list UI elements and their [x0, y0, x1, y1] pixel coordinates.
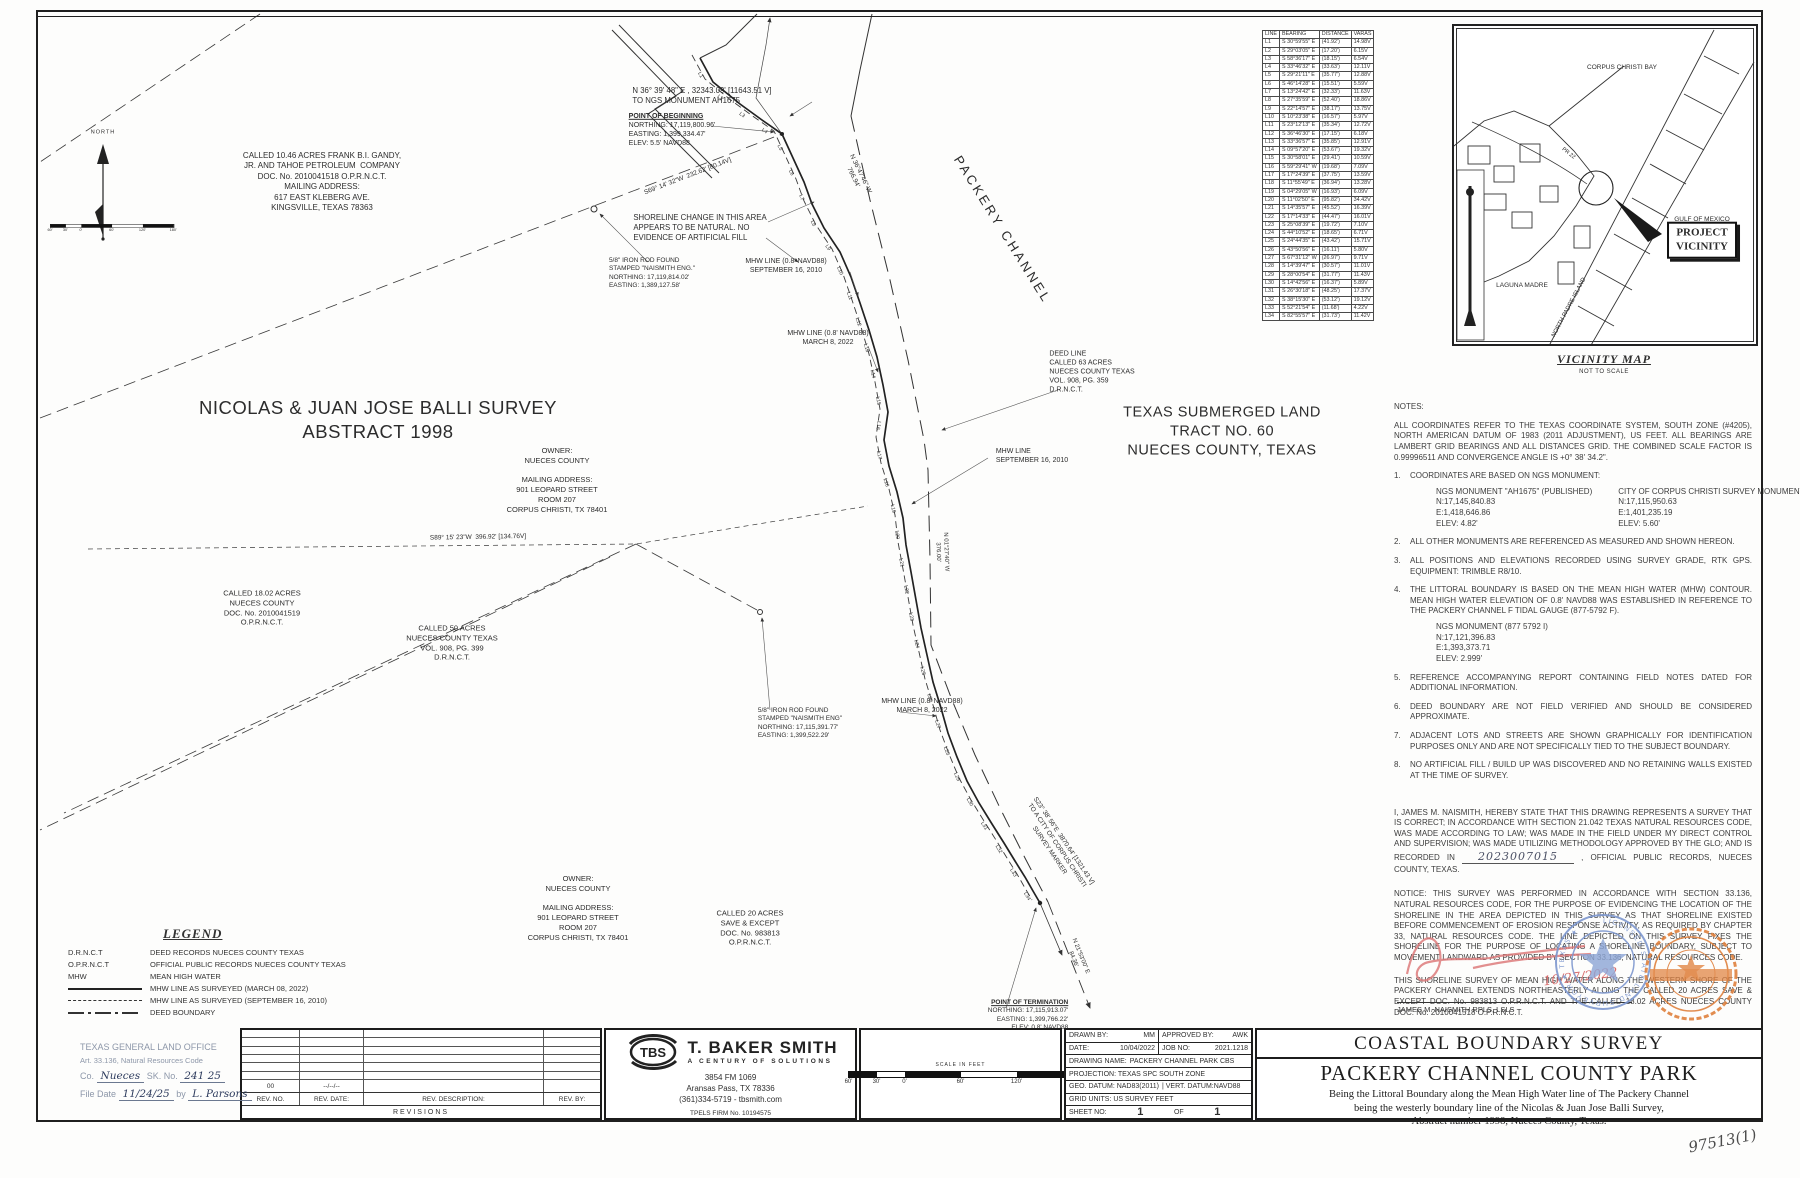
shoreline-segment-label: L18 [882, 478, 890, 488]
line-table-cell: L21 [1263, 205, 1280, 213]
shoreline-segment-label: L20 [893, 530, 900, 539]
line-table-cell: L34 [1263, 313, 1280, 321]
revision-empty-cell [300, 1030, 364, 1037]
pob-point [780, 132, 784, 136]
line-table-cell: S 17°24'39" E [1279, 172, 1319, 180]
line-table-cell: S 33°36'57" E [1279, 138, 1319, 146]
line-table-row: L3S 58°36'17" E(18.15')6.54V [1263, 55, 1374, 63]
legend-abbr-text: OFFICIAL PUBLIC RECORDS NUECES COUNTY TE… [150, 960, 346, 969]
revision-empty-cell [364, 1072, 544, 1079]
legend-line-row: MHW LINE AS SURVEYED (SEPTEMBER 16, 2010… [68, 996, 388, 1005]
line-table-cell: (19.72') [1319, 221, 1351, 229]
line-table-cell: S 30°58'01" E [1279, 155, 1319, 163]
channel-bank-right [851, 14, 872, 116]
deed-line-horizontal [88, 506, 868, 549]
glo-county-line: Co. Nueces SK. No. 241 25 [80, 1068, 310, 1086]
scale-bar [848, 1071, 1074, 1078]
line-table-cell: L4 [1263, 64, 1280, 72]
legend-abbr-text: MEAN HIGH WATER [150, 972, 221, 981]
shoreline-segment-label: L29 [952, 772, 961, 782]
glo-sk-value: 241 25 [180, 1070, 225, 1083]
line-table-row: L12S 36°46'30" E(17.15')6.18V [1263, 130, 1374, 138]
line-table-cell: (16.93') [1319, 188, 1351, 196]
line-table-row: L13S 33°36'57" E(35.85')12.91V [1263, 138, 1374, 146]
line-table-row: L4S 33°46'32" E(33.63')12.11V [1263, 64, 1374, 72]
iron-rod-label-north: 5/8" IRON ROD FOUND STAMPED "NAISMITH EN… [609, 257, 695, 291]
owner-label-1: OWNER: NUECES COUNTY MAILING ADDRESS: 90… [507, 446, 608, 514]
line-table-cell: (41.92') [1319, 39, 1351, 47]
line-table-cell: (18.15') [1319, 55, 1351, 63]
line-table-cell: (30.57') [1319, 263, 1351, 271]
revisions-caption: REVISIONS [242, 1106, 600, 1118]
grid-units: GRID UNITS: US SURVEY FEET [1069, 1096, 1173, 1103]
line-table-cell: 34.42V [1351, 196, 1374, 204]
vicinity-caption: VICINITY MAP NOT TO SCALE [1557, 352, 1651, 375]
line-table-cell: L10 [1263, 113, 1280, 121]
line-table-cell: 9.71V [1351, 255, 1374, 263]
line-table-row: L20S 11°02'50" E(95.82')34.42V [1263, 196, 1374, 204]
label-title: POINT OF TERMINATION [991, 999, 1068, 1006]
line-table-cell: S 11°55'49" E [1279, 180, 1319, 188]
point-of-beginning-label: POINT OF BEGINNING NORTHING: 17,119,800.… [629, 112, 716, 148]
line-table-cell: L30 [1263, 279, 1280, 287]
line-table-cell: L16 [1263, 163, 1280, 171]
shoreline-segment-label: L8 [809, 220, 817, 228]
sheet-no-value: 1 [1110, 1106, 1171, 1118]
revision-empty-row [242, 1030, 600, 1038]
legend-abbr-text: DEED RECORDS NUECES COUNTY TEXAS [150, 948, 304, 957]
note-number: 7. [1394, 731, 1405, 752]
surveyor-name: JAMES M. NAISMITH RPLS, LSLS [1397, 1005, 1515, 1014]
line-table-cell: L33 [1263, 304, 1280, 312]
line-table-row: L9S 22°14'57" E(38.17')13.75V [1263, 105, 1374, 113]
line-table-cell: 18.86V [1351, 97, 1374, 105]
line-table-header: VARAS [1351, 31, 1374, 39]
shoreline-segment-label: L4 [760, 127, 768, 135]
mhw-2010-label-upper: MHW LINE (0.8' NAVD88) SEPTEMBER 16, 201… [745, 257, 826, 275]
state-land-surveyor-stamp: LICENSED STATE LAND SURVEYOR ★ TEXAS ★ [1553, 912, 1653, 1012]
line-table-cell: (44.47') [1319, 213, 1351, 221]
line-table-cell: (35.85') [1319, 138, 1351, 146]
shoreline-segment-label: L22 [902, 585, 909, 595]
note-number: 6. [1394, 702, 1405, 723]
line-table-cell: 5.89V [1351, 279, 1374, 287]
shoreline-segment-label: L10 [835, 266, 844, 276]
line-table-header: LINE [1263, 31, 1280, 39]
shoreline-segment-label: L21 [897, 558, 904, 568]
shoreline-segment-label: L27 [933, 719, 941, 729]
line-table-row: L14S 09°57'20" E(53.67')19.32V [1263, 147, 1374, 155]
line-table-cell: L15 [1263, 155, 1280, 163]
line-table-cell: S 38°15'30" E [1279, 296, 1319, 304]
tract-1802-label: CALLED 18.02 ACRES NUECES COUNTY DOC. No… [223, 589, 301, 628]
date-value: 10/04/2022 [1120, 1045, 1155, 1052]
line-table-cell: (53.12') [1319, 296, 1351, 304]
line-table-cell: 12.88V [1351, 72, 1374, 80]
firm-name: T. BAKER SMITH [688, 1038, 838, 1058]
line-table-cell: 15.71V [1351, 238, 1374, 246]
note-number: 3. [1394, 556, 1405, 577]
line-table-cell: (52.40') [1319, 97, 1351, 105]
line-table-cell: (32.33') [1319, 89, 1351, 97]
note-item: 4.THE LITTORAL BOUNDARY IS BASED ON THE … [1394, 585, 1752, 664]
line-table-cell: L29 [1263, 271, 1280, 279]
notes-gap [1394, 790, 1752, 808]
line-table-cell: (29.41') [1319, 155, 1351, 163]
project-description-1: Being the Littoral Boundary along the Me… [1257, 1088, 1761, 1102]
survey-name-label: NICOLAS & JUAN JOSE BALLI SURVEY ABSTRAC… [199, 396, 557, 444]
line-table-cell: (33.63') [1319, 64, 1351, 72]
legend-line-sample-dashdot [68, 1012, 150, 1014]
note-item: 8.NO ARTIFICIAL FILL / BUILD UP WAS DISC… [1394, 760, 1752, 781]
ngs-tie-line [756, 18, 782, 134]
line-table-row: L16S 59°29'41" W(19.68')7.09V [1263, 163, 1374, 171]
legend-abbr: D.R.N.C.T [68, 948, 150, 957]
bearing-n01: N 01°27'40" W 376.00' [933, 532, 950, 572]
line-table-cell: L32 [1263, 296, 1280, 304]
line-table-cell: 7.09V [1351, 163, 1374, 171]
line-table-cell: (18.65') [1319, 230, 1351, 238]
glo-filedate-value: 11/24/25 [119, 1088, 174, 1101]
line-table-cell: L22 [1263, 213, 1280, 221]
line-table-cell: 13.28V [1351, 180, 1374, 188]
vicinity-map: CORPUS CHRISTI BAYGULF OF MEXICOLAGUNA M… [1452, 24, 1758, 346]
line-table-cell: (16.37') [1319, 279, 1351, 287]
note-number: 1. [1394, 471, 1405, 529]
shoreline-segment-label: L30 [965, 797, 974, 808]
line-table-cell: L13 [1263, 138, 1280, 146]
scale-tick: 60' [845, 1079, 853, 1085]
line-table-cell: (16.11') [1319, 246, 1351, 254]
scale-tick: 30' [63, 228, 68, 232]
rev-by-value [544, 1080, 600, 1092]
line-table-cell: L26 [1263, 246, 1280, 254]
line-table-row: L24S 44°10'52" E(18.65')6.71V [1263, 230, 1374, 238]
line-table-cell: S 17°14'33" E [1279, 213, 1319, 221]
approved-by-label: APPROVED BY: [1162, 1032, 1214, 1039]
glo-co-label: Co. [80, 1071, 94, 1081]
line-table-cell: L14 [1263, 147, 1280, 155]
revision-empty-cell [544, 1055, 600, 1062]
vicinity-linework [1454, 26, 1756, 344]
revision-empty-cell [544, 1063, 600, 1070]
line-table-cell: 19.32V [1351, 147, 1374, 155]
scale-tick: 0' [79, 228, 82, 232]
drawing-name-label: DRAWING NAME: [1069, 1058, 1127, 1065]
line-table-cell: 11.01V [1351, 263, 1374, 271]
notes-paragraph: ALL COORDINATES REFER TO THE TEXAS COORD… [1394, 421, 1752, 464]
mhw-2022-label-upper: MHW LINE (0.8' NAVD88) MARCH 8, 2022 [787, 329, 868, 347]
revision-empty-cell [544, 1038, 600, 1045]
glo-county-value: Nueces [97, 1070, 145, 1083]
deed-line-label: DEED LINE CALLED 63 ACRES NUECES COUNTY … [1049, 349, 1134, 394]
certification-paragraph: I, JAMES M. NAISMITH, HEREBY STATE THAT … [1394, 808, 1752, 876]
line-table-cell: (17.20') [1319, 47, 1351, 55]
recording-number: 2023007015 [1462, 850, 1574, 864]
line-table-cell: (35.77') [1319, 72, 1351, 80]
scale-tick: 0' [902, 1079, 906, 1085]
line-table-cell: 6.15V [1351, 47, 1374, 55]
glo-filedate-line: File Date 11/24/25 by L. Parsons [80, 1086, 310, 1104]
shoreline-segment-label: L14 [869, 369, 877, 379]
line-table-cell: L17 [1263, 172, 1280, 180]
scale-title: SCALE IN FEET [936, 1062, 986, 1068]
line-table-cell: L5 [1263, 72, 1280, 80]
line-table-cell: 5.97V [1351, 113, 1374, 121]
iron-rod-label-south: 5/8" IRON ROD FOUND STAMPED "NAISMITH EN… [758, 707, 842, 741]
line-table-cell: (19.68') [1319, 163, 1351, 171]
line-table-cell: S 04°29'05" W [1279, 188, 1319, 196]
scale-segment [877, 1072, 905, 1077]
line-table-cell: S 44°10'52" E [1279, 230, 1319, 238]
scale-segment [849, 1072, 877, 1077]
job-no-value: 2021.1218 [1215, 1045, 1248, 1052]
line-table-cell: L9 [1263, 105, 1280, 113]
line-table-cell: 16.01V [1351, 213, 1374, 221]
vicinity-north-panel [1457, 170, 1484, 340]
line-table-cell: 13.59V [1351, 172, 1374, 180]
glo-filing-stamp: TEXAS GENERAL LAND OFFICE Art. 33.136, N… [80, 1040, 310, 1104]
corpus-christi-bay-label: CORPUS CHRISTI BAY [1587, 64, 1657, 72]
line-table-cell: 11.63V [1351, 89, 1374, 97]
line-table-cell: 17.37V [1351, 288, 1374, 296]
line-table-row: L26S 43°50'56" E(16.11')5.80V [1263, 246, 1374, 254]
note-number: 5. [1394, 673, 1405, 694]
line-table-cell: 11.42V [1351, 313, 1374, 321]
line-table-cell: L24 [1263, 230, 1280, 238]
mini-scale-ticks: 60'30'0'60'120'180' [50, 228, 173, 233]
line-table-cell: S 14°42'56" E [1279, 279, 1319, 287]
line-table-cell: 12.72V [1351, 122, 1374, 130]
scale-tick: 60' [47, 228, 52, 232]
shoreline-segment-label: L15 [874, 396, 881, 406]
line-table-cell: (95.82') [1319, 196, 1351, 204]
line-table-row: L6S 46°14'28" E(15.51')5.59V [1263, 80, 1374, 88]
graphic-scale-block: SCALE IN FEET 60'30'0'60'120'180' [859, 1028, 1062, 1120]
tract-20-label: CALLED 20 ACRES SAVE & EXCEPT DOC. No. 9… [716, 909, 783, 948]
survey-type-title: COASTAL BOUNDARY SURVEY [1257, 1030, 1761, 1059]
line-table-header: BEARING [1279, 31, 1319, 39]
firm-phone: (361)334-5719 - tbsmith.com [679, 1095, 782, 1106]
revision-empty-cell [242, 1030, 300, 1037]
line-table-cell: S 30°59'55" E [1279, 39, 1319, 47]
sheet-no-label: SHEET NO: [1069, 1109, 1107, 1116]
shoreline-segment-label: L34 [1022, 891, 1032, 902]
mhw-2022-label-lower: MHW LINE (0.8' NAVD88) MARCH 8, 2022 [881, 697, 962, 715]
line-table-row: L23S 25°08'39" E(19.72')7.10V [1263, 221, 1374, 229]
iron-rod-mid-marker [758, 610, 763, 615]
line-table-cell: (48.25') [1319, 288, 1351, 296]
line-table-row: L21S 14°35'57" E(45.52')16.39V [1263, 205, 1374, 213]
line-table-row: L2S 29°03'05" E(17.20')6.15V [1263, 47, 1374, 55]
line-table-cell: S 29°03'05" E [1279, 47, 1319, 55]
firm-address-2: Aransas Pass, TX 78336 [679, 1084, 782, 1095]
line-table-row: L10S 10°23'38" E(16.57')5.97V [1263, 113, 1374, 121]
shoreline-segment-label: L31 [979, 821, 989, 832]
job-no-label: JOB NO: [1162, 1045, 1190, 1052]
scale-segment [961, 1072, 1017, 1077]
line-table-cell: L28 [1263, 263, 1280, 271]
note-number: 4. [1394, 585, 1405, 664]
legend-abbr-row: D.R.N.C.TDEED RECORDS NUECES COUNTY TEXA… [68, 948, 388, 957]
project-description-2: being the westerly boundary line of the … [1257, 1102, 1761, 1116]
deed-boundary-line [851, 116, 1048, 902]
line-table-cell: L31 [1263, 288, 1280, 296]
notes-header: NOTES: [1394, 402, 1752, 413]
line-table-cell: S 13°24'42" E [1279, 89, 1319, 97]
line-table-cell: 13.75V [1351, 105, 1374, 113]
revision-empty-cell [364, 1047, 544, 1054]
note-text: ALL OTHER MONUMENTS ARE REFERENCED AS ME… [1410, 537, 1752, 548]
note-item: 1.COORDINATES ARE BASED ON NGS MONUMENT:… [1394, 471, 1752, 529]
line-table-header: DISTANCE [1319, 31, 1351, 39]
line-table-cell: S 36°46'30" E [1279, 130, 1319, 138]
legend-line-sample-solid [68, 988, 150, 990]
line-table-row: L28S 14°39'47" E(30.57')11.01V [1263, 263, 1374, 271]
scale-ticks: 60'30'0'60'120'180' [849, 1078, 1073, 1087]
shoreline-segment-label: L33 [1008, 868, 1018, 879]
line-table-cell: S 59°29'41" W [1279, 163, 1319, 171]
line-table-cell: (36.94') [1319, 180, 1351, 188]
line-table-cell: L11 [1263, 122, 1280, 130]
line-table-cell: (31.77') [1319, 271, 1351, 279]
rev-desc-value [364, 1080, 544, 1092]
line-table-cell: S 24°44'35" E [1279, 238, 1319, 246]
line-table-cell: L12 [1263, 130, 1280, 138]
shoreline-segment-label: L28 [942, 746, 951, 756]
deed-diagonal-lower-1 [64, 544, 636, 813]
project-vicinity-box: PROJECT VICINITY [1667, 222, 1737, 259]
scale-tick: 120' [139, 228, 146, 232]
line-table-cell: S 46°14'28" E [1279, 80, 1319, 88]
vicinity-map-title: VICINITY MAP [1557, 352, 1651, 367]
firm-license: TPELS FIRM No. 10194575 [690, 1110, 771, 1117]
tract-1046-label: CALLED 10.46 ACRES FRANK B.I. GANDY, JR.… [243, 151, 401, 213]
line-table-cell: (45.52') [1319, 205, 1351, 213]
line-table-row: L33S 52°21'54" E(11.68')4.22V [1263, 304, 1374, 312]
line-table-cell: S 11°02'50" E [1279, 196, 1319, 204]
bearing-s89: S89° 15' 23"W 396.92' [134.76V] [430, 533, 526, 543]
line-table-row: L32S 38°15'30" E(53.12')19.12V [1263, 296, 1374, 304]
line-table-cell: S 43°50'56" E [1279, 246, 1319, 254]
legend-abbr-row: O.P.R.N.C.TOFFICIAL PUBLIC RECORDS NUECE… [68, 960, 388, 969]
line-table-row: L27S 67°31'12" W(26.97')9.71V [1263, 255, 1374, 263]
approved-by-value: AWK [1232, 1032, 1248, 1039]
laguna-madre-label: LAGUNA MADRE [1496, 282, 1548, 290]
line-table-cell: S 82°55'57" E [1279, 313, 1319, 321]
legend-line-text: MHW LINE AS SURVEYED (MARCH 08, 2022) [150, 984, 308, 993]
title-block: COASTAL BOUNDARY SURVEY PACKERY CHANNEL … [1255, 1028, 1763, 1120]
legend-line-row: DEED BOUNDARY [68, 1008, 388, 1017]
sheet-of-label: OF [1174, 1109, 1184, 1116]
legend: LEGEND D.R.N.C.TDEED RECORDS NUECES COUN… [68, 926, 388, 1020]
revision-empty-cell [364, 1063, 544, 1070]
line-table-cell: 12.91V [1351, 138, 1374, 146]
line-table-cell: 11.43V [1351, 271, 1374, 279]
legend-line-text: DEED BOUNDARY [150, 1008, 215, 1017]
line-table-cell: (53.67') [1319, 147, 1351, 155]
project-title: PACKERY CHANNEL COUNTY PARK [1257, 1061, 1761, 1086]
line-table-cell: S 14°39'47" E [1279, 263, 1319, 271]
tbs-logo-icon: TBS [624, 1031, 682, 1071]
tract-50-label: CALLED 50 ACRES NUECES COUNTY TEXAS VOL.… [406, 624, 497, 663]
legend-line-row: MHW LINE AS SURVEYED (MARCH 08, 2022) [68, 984, 388, 993]
scale-tick: 180' [170, 228, 177, 232]
line-table-cell: 16.39V [1351, 205, 1374, 213]
line-table-cell: L23 [1263, 221, 1280, 229]
line-table-cell: 5.80V [1351, 246, 1374, 254]
line-table-row: L7S 13°24'42" E(32.33')11.63V [1263, 89, 1374, 97]
geo-datum: GEO. DATUM: NAD83(2011) [1069, 1083, 1159, 1090]
deed-diagonal-lower-2 [40, 557, 610, 830]
glo-by-value: L. Parsons [188, 1088, 251, 1101]
surveyor-seal [1642, 925, 1740, 1023]
channel-bank-left [700, 14, 757, 58]
line-table-cell: 6.71V [1351, 230, 1374, 238]
note-text: ALL POSITIONS AND ELEVATIONS RECORDED US… [1410, 556, 1752, 577]
survey-sheet: L1L2L3L4L5L6L7L8L9L10L11L12L13L14L15L16L… [0, 0, 1800, 1178]
vicinity-map-scale-note: NOT TO SCALE [1557, 369, 1651, 375]
note-columns: NGS MONUMENT "AH1675" (PUBLISHED) N:17,1… [1436, 487, 1800, 530]
line-table-row: L15S 30°58'01" E(29.41')10.59V [1263, 155, 1374, 163]
line-table-cell: S 26°30'18" E [1279, 288, 1319, 296]
scale-tick: 60' [957, 1079, 965, 1085]
note-number: 8. [1394, 760, 1405, 781]
legend-title: LEGEND [163, 926, 388, 942]
rev-by-header: REV. BY: [544, 1093, 600, 1105]
line-table-row: L29S 28°00'54" E(31.77')11.43V [1263, 271, 1374, 279]
line-table-row: L11S 23°12'13" E(35.34')12.72V [1263, 122, 1374, 130]
line-table-cell: L8 [1263, 97, 1280, 105]
line-table-cell: S 10°23'38" E [1279, 113, 1319, 121]
line-table-cell: S 23°12'13" E [1279, 122, 1319, 130]
revision-empty-cell [544, 1072, 600, 1079]
shoreline-segment-label: L16 [874, 421, 881, 431]
line-table-row: L8S 27°35'59" E(52.40')18.86V [1263, 97, 1374, 105]
line-table-row: L5S 29°21'11" E(35.77')12.88V [1263, 72, 1374, 80]
line-table-cell: S 28°00'54" E [1279, 271, 1319, 279]
line-table-cell: 10.59V [1351, 155, 1374, 163]
shoreline-segment-label: L12 [854, 317, 862, 327]
revision-empty-cell [544, 1047, 600, 1054]
line-table-row: L34S 82°55'57" E(31.73')11.42V [1263, 313, 1374, 321]
sheet-total-value: 1 [1187, 1106, 1248, 1118]
line-table-row: L25S 24°44'35" E(43.42')15.71V [1263, 238, 1374, 246]
legend-abbr: O.P.R.N.C.T [68, 960, 150, 969]
scale-tick: 120' [1011, 1079, 1022, 1085]
note-text: DEED BOUNDARY ARE NOT FIELD VERIFIED AND… [1410, 702, 1752, 723]
deed-diagonal-lower-3 [636, 544, 757, 610]
line-table-row: L22S 17°14'33" E(44.47')16.01V [1263, 213, 1374, 221]
note-item: 6.DEED BOUNDARY ARE NOT FIELD VERIFIED A… [1394, 702, 1752, 723]
scale-segment [905, 1072, 961, 1077]
line-table-cell: S 33°46'32" E [1279, 64, 1319, 72]
line-table-cell: 14.98V [1351, 39, 1374, 47]
revision-empty-cell [364, 1055, 544, 1062]
line-table-cell: L2 [1263, 47, 1280, 55]
line-table-cell: 6.54V [1351, 55, 1374, 63]
line-table-cell: (31.73') [1319, 313, 1351, 321]
firm-address-1: 3854 FM 1069 [679, 1073, 782, 1084]
north-label: NORTH [91, 129, 115, 136]
note-sub: NGS MONUMENT (877 5792 I) N:17,121,396.8… [1436, 622, 1752, 665]
ngs-tie-bearing: N 36° 39' 48" E , 32343.09' [11643.51 V]… [632, 86, 771, 106]
shoreline-segment-label: L24 [913, 639, 921, 649]
shoreline-segment-label: L25 [918, 666, 926, 676]
label-title: POINT OF BEGINNING [629, 113, 704, 120]
line-table-cell: L19 [1263, 188, 1280, 196]
line-table-cell: 4.22V [1351, 304, 1374, 312]
